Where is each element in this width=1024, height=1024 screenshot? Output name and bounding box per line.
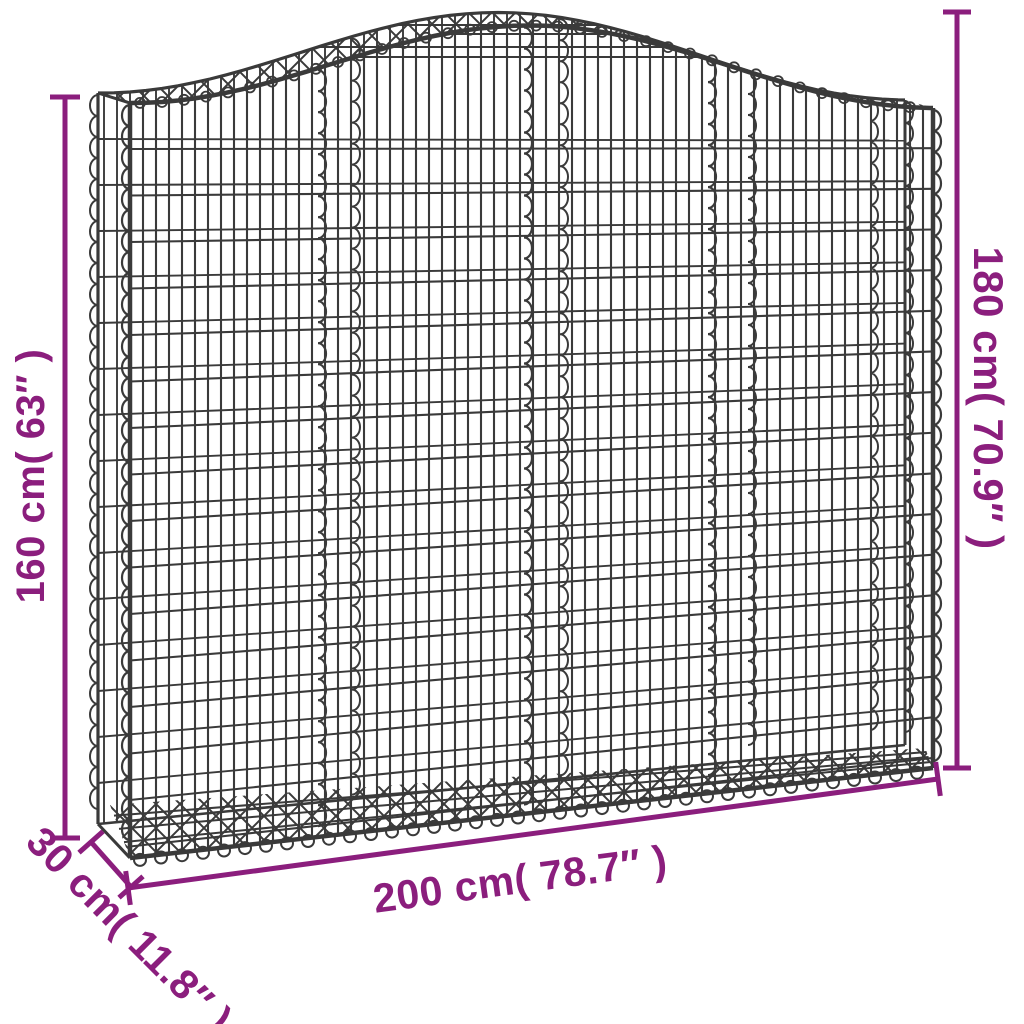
wire-mesh-back bbox=[90, 13, 913, 825]
product-dimension-diagram: 160 cm( 63″ ) 180 cm( 70.9″ ) 200 cm( 78… bbox=[0, 0, 1024, 1024]
dimension-total-height: 180 cm( 70.9″ ) bbox=[943, 12, 1012, 768]
gabion-diagram-svg: 160 cm( 63″ ) 180 cm( 70.9″ ) 200 cm( 78… bbox=[0, 0, 1024, 1024]
dimension-label-total-height: 180 cm( 70.9″ ) bbox=[965, 246, 1012, 549]
tick-width-right bbox=[936, 762, 941, 796]
dimension-label-side-height: 160 cm( 63″ ) bbox=[9, 349, 53, 604]
gabion-basket bbox=[90, 13, 941, 866]
wire-mesh-front bbox=[98, 21, 941, 866]
dimension-side-height: 160 cm( 63″ ) bbox=[9, 97, 80, 838]
